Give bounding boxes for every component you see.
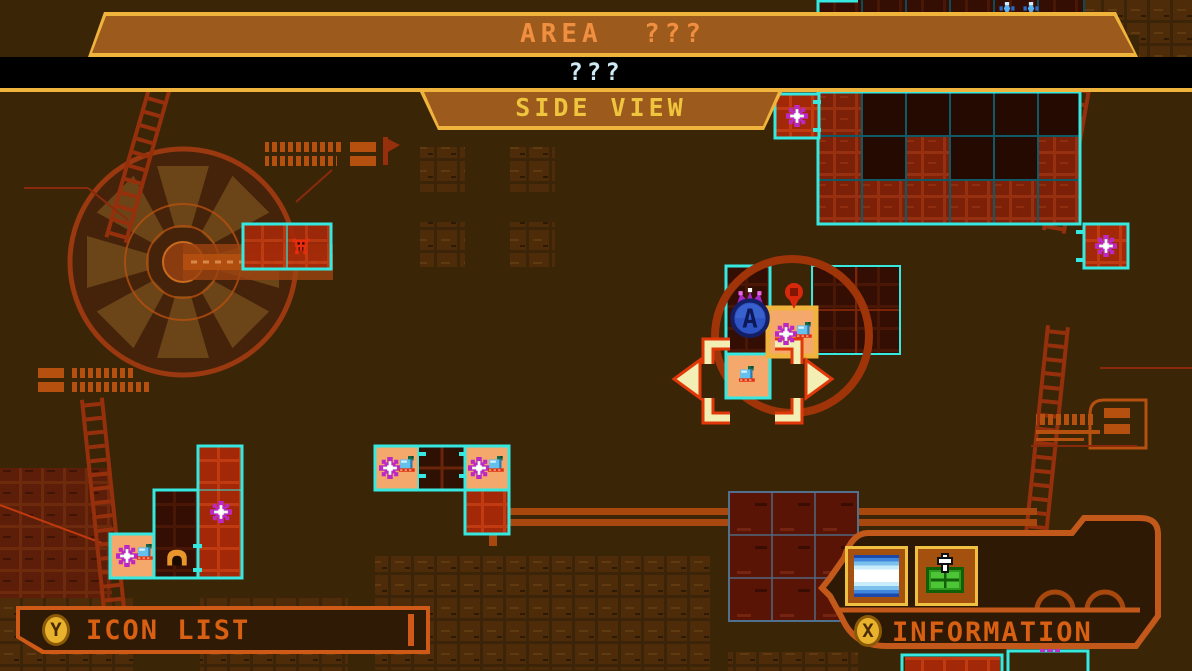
- icon-list-end-bar: [408, 614, 414, 646]
- save-flower-icon: [775, 323, 797, 345]
- save-flower-icon: [786, 105, 808, 127]
- shelter-icon: [167, 550, 186, 566]
- x-button-icon: X: [854, 615, 882, 647]
- save-flower-icon: [1095, 235, 1117, 257]
- icon-list-button[interactable]: Y ICON LIST: [16, 606, 430, 654]
- view-tab: SIDE VIEW: [420, 92, 782, 130]
- save-flower-icon: [116, 545, 138, 567]
- save-flower-icon: [210, 501, 232, 523]
- information-panel: X INFORMATION: [800, 498, 1192, 671]
- header-divider: [0, 88, 1192, 92]
- save-flower-icon: [468, 457, 490, 479]
- view-tab-label: SIDE VIEW: [424, 92, 778, 124]
- icon-list-label: ICON LIST: [86, 615, 250, 646]
- map-chip-icon: [924, 555, 969, 597]
- info-slot-map[interactable]: [915, 546, 978, 606]
- save-flower-icon: [379, 457, 401, 479]
- information-label: INFORMATION: [892, 617, 1093, 648]
- area-subtitle-bar: ???: [0, 57, 1192, 88]
- info-slot-waterfall[interactable]: [845, 546, 908, 606]
- waterfall-icon: [854, 555, 899, 597]
- area-banner: AREA ???: [88, 12, 1138, 57]
- area-subtitle: ???: [0, 57, 1192, 87]
- map-screen: { "header": { "area_label": "AREA ???", …: [0, 0, 1192, 671]
- area-title: AREA ???: [92, 16, 1134, 53]
- y-button-icon: Y: [42, 614, 70, 646]
